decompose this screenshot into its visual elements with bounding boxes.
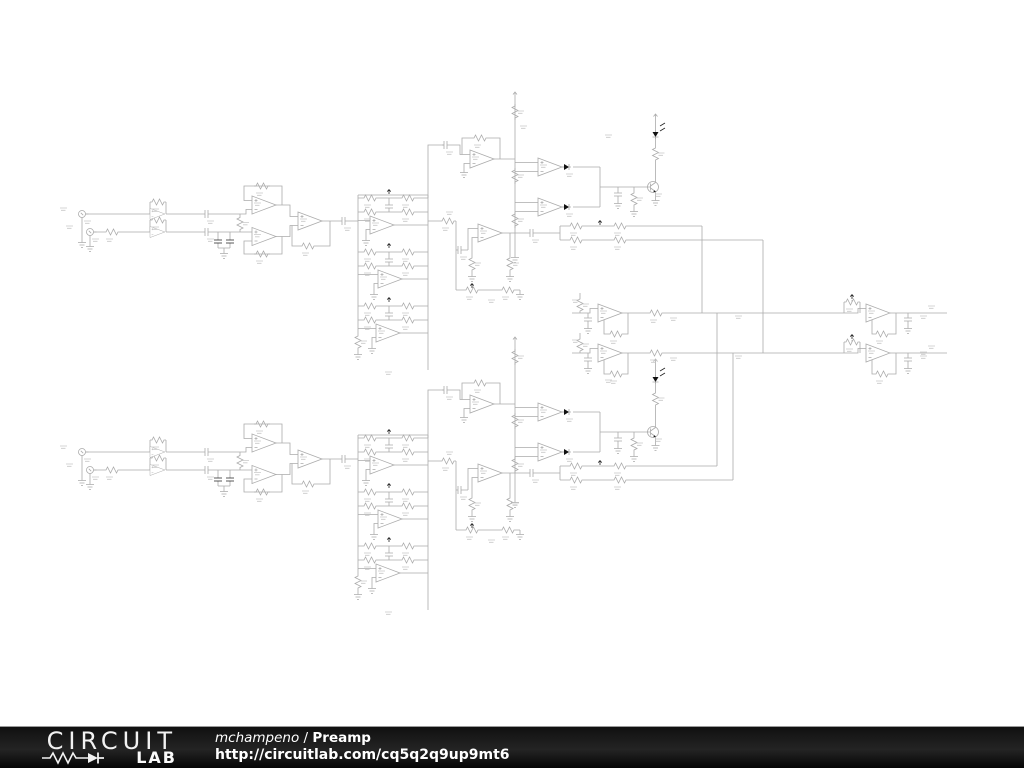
clip-detector-ch2 — [442, 337, 665, 508]
clip-detector-ch1 — [442, 92, 665, 263]
component-labels — [385, 126, 927, 614]
mixer-right — [572, 333, 664, 383]
schematic-drawing — [60, 92, 947, 614]
byline-separator: / — [299, 730, 312, 746]
mixer-left — [572, 293, 664, 343]
circuitlab-logo: CIRCUIT LAB — [0, 729, 215, 766]
eq-stack-ch1 — [354, 190, 428, 370]
schematic-area — [0, 0, 1024, 726]
resistor-diode-icon — [42, 750, 134, 766]
gain-stage-ch2 — [428, 458, 648, 540]
circuitlab-export-page: CIRCUIT LAB mchampeno / Preamp http://ci… — [0, 0, 1024, 768]
schematic-byline: mchampeno / Preamp — [215, 730, 510, 747]
routing-wires — [428, 145, 830, 480]
footer-meta: mchampeno / Preamp http://circuitlab.com… — [215, 730, 510, 764]
schematic-canvas — [0, 0, 1024, 726]
eq-stack-ch2 — [354, 430, 428, 610]
schematic-title: Preamp — [312, 730, 371, 746]
output-stage-right — [830, 335, 947, 384]
logo-wordmark-lab: LAB — [136, 750, 177, 766]
output-stage-left — [830, 295, 947, 344]
footer-bar: CIRCUIT LAB mchampeno / Preamp http://ci… — [0, 726, 1024, 768]
schematic-url: http://circuitlab.com/cq5q2q9up9mt6 — [215, 747, 510, 765]
gain-stage-ch1 — [428, 218, 648, 300]
author-name: mchampeno — [215, 730, 299, 746]
input-chain-ch1 — [60, 183, 358, 263]
input-chain-ch2 — [60, 421, 358, 501]
